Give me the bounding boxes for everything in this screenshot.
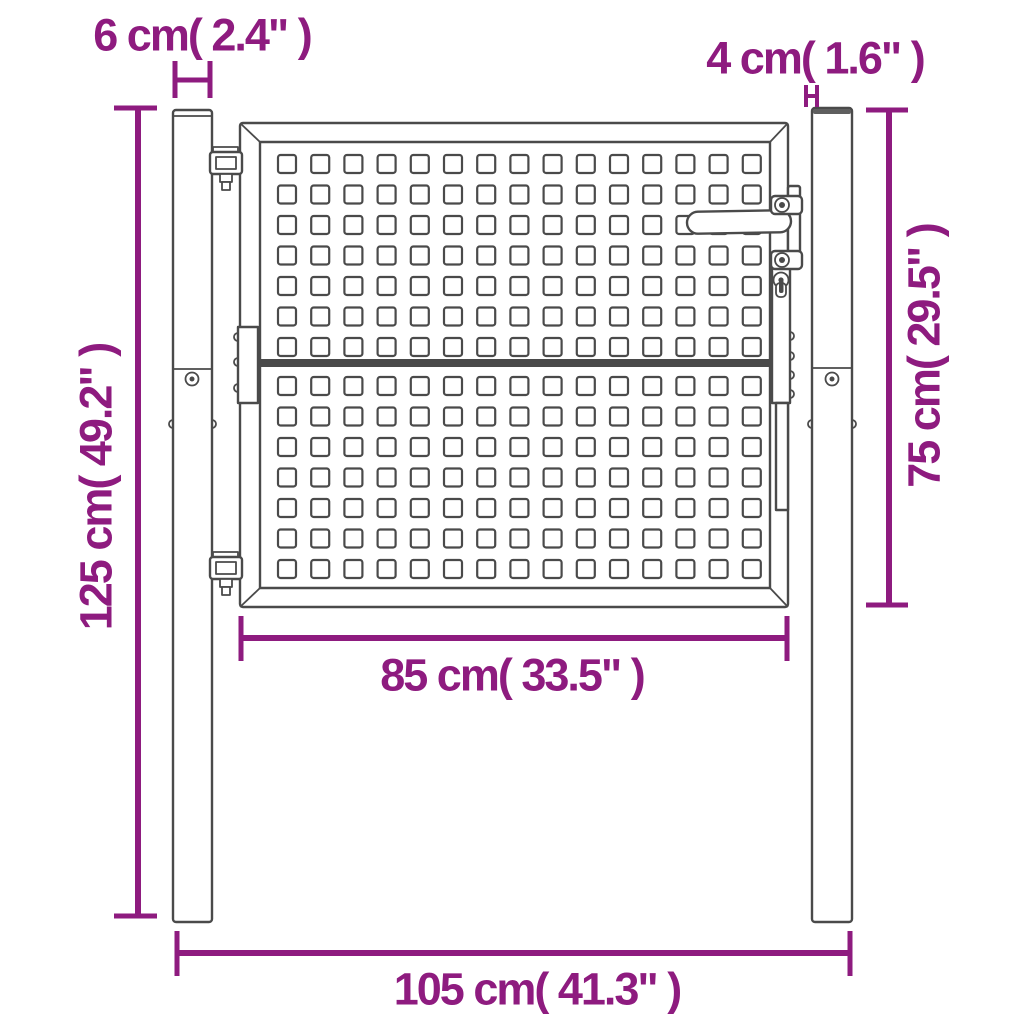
perforation-square [311,247,329,265]
perforation-square [710,308,728,326]
right-post [808,108,856,922]
perforation-square [610,377,628,395]
perforation-square [411,216,429,234]
perforation-square [743,247,761,265]
perforation-square [643,155,661,173]
perforation-square [510,377,528,395]
hinge-clamp-inner [216,562,236,574]
perforation-square [643,308,661,326]
perforation-square [378,308,396,326]
perforation-square [278,438,296,456]
perforation-square [544,377,562,395]
perforation-square [278,377,296,395]
perforation-square [610,277,628,295]
perforation-square [311,560,329,578]
perforation-square [444,338,462,356]
perforation-square [743,560,761,578]
perforation-square [676,499,694,517]
perforation-square [710,186,728,204]
perforation-square [378,216,396,234]
perforation-square [411,499,429,517]
perforation-square [344,186,362,204]
perforation-square [510,408,528,426]
perforation-square [411,438,429,456]
left-post-body [173,110,212,922]
perforation-square [444,408,462,426]
perforation-square [311,186,329,204]
perforation-square [344,438,362,456]
perforation-square [577,216,595,234]
perforation-square [510,338,528,356]
perforation-square [577,377,595,395]
perforation-square [477,530,495,548]
perforation-square [610,308,628,326]
perforation-square [311,469,329,487]
perforation-square [710,408,728,426]
diagram-line-art [0,0,1024,1024]
perforation-square [278,408,296,426]
perforation-square [610,155,628,173]
perforation-square [544,560,562,578]
perforation-square [743,530,761,548]
perforation-square [676,186,694,204]
perforation-square [378,560,396,578]
perforation-square [344,308,362,326]
perforation-square [643,530,661,548]
perforation-square [743,408,761,426]
perforation-square [378,530,396,548]
perforation-square [278,308,296,326]
perforation-square [643,377,661,395]
perforation-square [610,499,628,517]
perforation-square [510,216,528,234]
perforation-square [278,155,296,173]
perforation-square [643,469,661,487]
left-post [169,110,216,922]
perforation-square [544,438,562,456]
perforation-square [477,469,495,487]
dimension-post-width-line [173,61,212,98]
perforation-square [577,530,595,548]
perforation-square [577,186,595,204]
perforation-square [477,560,495,578]
perforation-square [676,155,694,173]
perforation-square [278,530,296,548]
perforation-square [676,469,694,487]
perforation-square [544,338,562,356]
dimension-label-post-height: 125 cm( 49.2" ) [74,344,119,631]
perforation-square [610,408,628,426]
perforation-square [344,499,362,517]
perforation-square [710,155,728,173]
gate-dimension-diagram: 6 cm( 2.4" ) 4 cm( 1.6" ) 125 cm( 49.2" … [0,0,1024,1024]
perforation-square [610,530,628,548]
perforation-square [411,277,429,295]
hinge-nut [222,182,230,190]
perforation-square [710,469,728,487]
perforation-square [444,216,462,234]
post-screw-dot [830,377,835,382]
perforation-square [311,155,329,173]
perforation-square [643,247,661,265]
perforation-square [411,560,429,578]
perforation-square [510,469,528,487]
dimension-label-gap-width: 4 cm( 1.6" ) [706,36,923,81]
perforation-square [444,438,462,456]
perforation-square [444,469,462,487]
perforation-square [710,530,728,548]
perforation-square [643,186,661,204]
perforation-square [544,277,562,295]
perforation-square [278,469,296,487]
perforation-square [643,408,661,426]
perforation-square [311,277,329,295]
perforation-square [444,155,462,173]
perforation-square [311,338,329,356]
perforation-square [344,530,362,548]
perforation-square [378,377,396,395]
perforation-square [544,247,562,265]
perforation-square [311,499,329,517]
perforation-square [477,499,495,517]
perforation-square [378,186,396,204]
perforation-square [676,308,694,326]
perforation-square [544,469,562,487]
perforation-square [311,216,329,234]
perforation-square [510,499,528,517]
perforation-square [477,408,495,426]
perforation-square [577,277,595,295]
perforation-square [577,338,595,356]
hinge-clamp-inner [216,157,236,169]
perforation-square [710,338,728,356]
bracket-bolt-dot [779,257,785,263]
keyhole-icon [774,273,789,298]
perforation-square [544,499,562,517]
perforation-square [610,438,628,456]
perforation-square [610,186,628,204]
perforation-square [577,469,595,487]
perforation-square [344,277,362,295]
perforation-square [710,247,728,265]
perforation-square [743,338,761,356]
perforation-square [710,438,728,456]
perforation-square [411,377,429,395]
middle-rail [261,359,769,367]
perforation-square [411,338,429,356]
perforation-square [444,277,462,295]
lock-plate-lower [776,403,788,510]
right-post-body [812,108,852,922]
perforation-square [676,560,694,578]
perforation-square [610,216,628,234]
perforation-square [710,277,728,295]
perforation-square [643,277,661,295]
perforation-square [444,247,462,265]
perforation-square [378,469,396,487]
perforation-square [444,530,462,548]
perforation-square [643,438,661,456]
perforation-square [411,408,429,426]
perforation-square [344,469,362,487]
perforation-square [710,377,728,395]
perforation-square [278,186,296,204]
dimension-label-gate-height: 75 cm( 29.5" ) [902,224,947,488]
perforation-square [544,408,562,426]
hinge-stem [220,579,232,587]
dimension-gap-width-line [804,85,819,107]
perforation-square [577,247,595,265]
perforation-square [743,186,761,204]
perforation-square [311,377,329,395]
perforation-square [676,338,694,356]
perforation-square [577,155,595,173]
perforation-square [544,155,562,173]
perforation-square [643,216,661,234]
perforation-square [577,499,595,517]
perforation-square [676,247,694,265]
perforation-square [743,469,761,487]
perforation-square [278,216,296,234]
perforation-square [411,186,429,204]
hinge-stem [220,174,232,182]
perforation-square [411,247,429,265]
perforation-square [643,560,661,578]
perforation-square [477,155,495,173]
perforation-square [676,377,694,395]
perforation-square [477,438,495,456]
perforation-square [411,308,429,326]
perforation-square [344,377,362,395]
perforation-square [510,247,528,265]
dimension-label-gate-width: 85 cm( 33.5" ) [380,653,644,698]
perforation-square [477,186,495,204]
perforation-square [710,560,728,578]
perforation-square [278,560,296,578]
perforation-square [510,560,528,578]
gate-panel [234,123,788,607]
top-hinge [210,147,242,190]
perforation-square [743,308,761,326]
perforation-square [610,469,628,487]
perforation-square [444,377,462,395]
perforation-square [610,560,628,578]
perforation-square [477,247,495,265]
perforation-square [510,277,528,295]
perforation-square [444,560,462,578]
perforation-square [676,277,694,295]
perforation-square [344,408,362,426]
perforation-square [278,277,296,295]
perforation-square [344,560,362,578]
perforation-square [676,438,694,456]
perforation-square [278,499,296,517]
perforation-square [510,186,528,204]
perforation-square [577,560,595,578]
perforation-square [610,338,628,356]
perforation-square [577,308,595,326]
perforation-square [444,186,462,204]
perforation-square [510,155,528,173]
perforation-square [344,338,362,356]
perforation-square [311,438,329,456]
post-screw-dot [190,377,195,382]
perforation-square [477,338,495,356]
perforation-square [743,277,761,295]
dimension-label-total-width: 105 cm( 41.3" ) [394,967,681,1012]
perforation-square [344,216,362,234]
bottom-hinge [210,552,242,595]
perforation-square [743,377,761,395]
bracket-bolt-dot [779,202,785,208]
perforation-square [378,277,396,295]
dimension-label-post-width: 6 cm( 2.4" ) [93,13,310,58]
perforation-square [378,438,396,456]
perforation-square [411,469,429,487]
perforation-square [510,308,528,326]
perforation-square [544,530,562,548]
perforation-square [477,277,495,295]
perforation-square [477,308,495,326]
left-hinge-plate [238,327,258,403]
perforation-square [311,408,329,426]
perforation-square [510,438,528,456]
hinge-nut [222,587,230,595]
perforation-square [544,308,562,326]
perforation-square [344,247,362,265]
perforation-square [477,216,495,234]
perforation-square [643,338,661,356]
perforation-square [577,438,595,456]
perforation-square [378,155,396,173]
post-top-cap [813,109,851,114]
perforation-square [743,155,761,173]
perforation-square [378,247,396,265]
perforation-square [411,530,429,548]
perforation-square [311,308,329,326]
perforation-square [378,499,396,517]
perforation-square [643,499,661,517]
perforation-square [743,438,761,456]
perforation-square [378,338,396,356]
perforation-square [710,499,728,517]
perforation-square [577,408,595,426]
perforation-square [743,499,761,517]
perforation-square [444,308,462,326]
perforation-square [544,186,562,204]
perforation-square [378,408,396,426]
perforation-square [610,247,628,265]
perforation-square [676,408,694,426]
perforation-square [477,377,495,395]
perforation-square [510,530,528,548]
perforation-square [676,530,694,548]
perforation-square [444,499,462,517]
perforation-square [311,530,329,548]
perforation-square [278,338,296,356]
perforation-square [278,247,296,265]
perforation-square [544,216,562,234]
perforation-square [411,155,429,173]
perforation-square [344,155,362,173]
